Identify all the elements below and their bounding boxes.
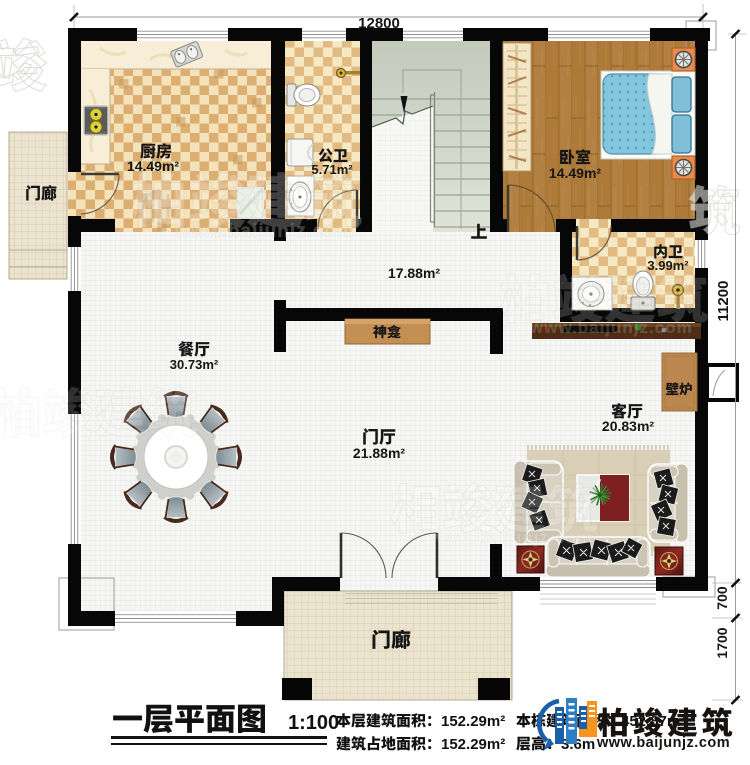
svg-text:www.baijunjz.com: www.baijunjz.com [174, 221, 355, 242]
svg-text:14.49m²: 14.49m² [127, 158, 179, 174]
svg-text:30.73m²: 30.73m² [170, 357, 219, 372]
svg-text:17.88m²: 17.88m² [388, 265, 440, 281]
svg-text:1:100: 1:100 [288, 712, 339, 734]
svg-text:152.29m²: 152.29m² [441, 713, 505, 730]
svg-text:20.83m²: 20.83m² [602, 418, 654, 434]
svg-text:152.29m²: 152.29m² [441, 736, 505, 753]
svg-text:700: 700 [714, 586, 730, 610]
svg-text:14.49m²: 14.49m² [549, 165, 601, 181]
svg-text:11200: 11200 [715, 281, 732, 322]
svg-text:21.88m²: 21.88m² [353, 445, 405, 461]
svg-text:www.baijunjz.com: www.baijunjz.com [429, 528, 593, 547]
svg-text:5.71m²: 5.71m² [311, 162, 353, 177]
svg-text:www.baijunjz.com: www.baijunjz.com [596, 735, 730, 751]
svg-text:1700: 1700 [714, 627, 730, 658]
svg-text:3.99m²: 3.99m² [647, 258, 689, 273]
svg-text:12800: 12800 [358, 15, 400, 32]
svg-text:www.baijunjz.com: www.baijunjz.com [529, 318, 693, 337]
